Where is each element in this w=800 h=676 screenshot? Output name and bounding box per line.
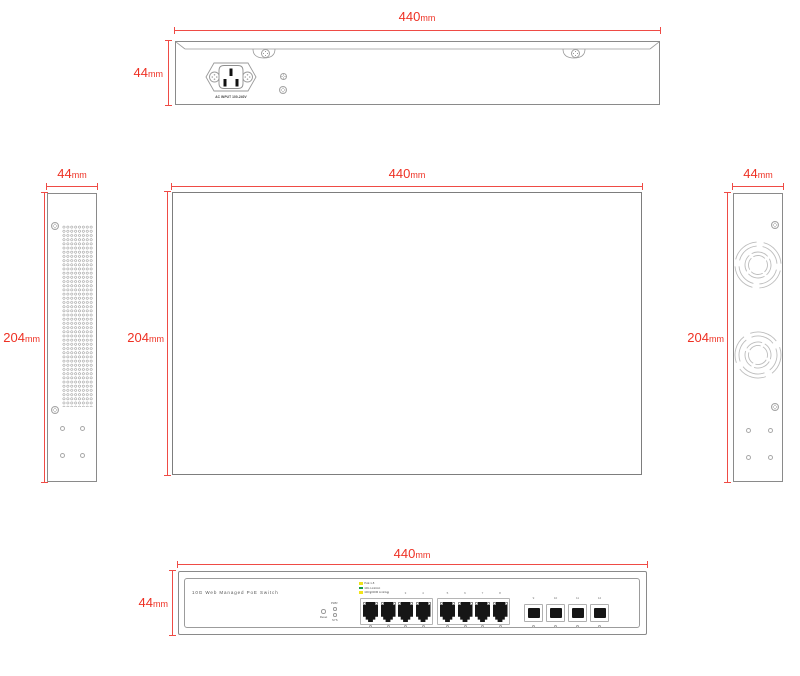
port-screw-hole bbox=[532, 625, 535, 628]
port-led-icon bbox=[493, 602, 496, 605]
mount-hole bbox=[80, 453, 85, 458]
sfp-port bbox=[590, 604, 609, 622]
dimension-line-left-width bbox=[47, 186, 97, 187]
port-led-icon bbox=[475, 602, 478, 605]
port-number: 7 bbox=[476, 592, 490, 595]
screw-icon bbox=[280, 73, 287, 80]
front-face-panel: 10G Web Managed PoE Switch PoE 1-8 10G L… bbox=[184, 578, 640, 628]
rj45-jack-icon bbox=[381, 602, 396, 622]
legend-swatch-1000m bbox=[359, 591, 363, 594]
rj45-port-group bbox=[360, 598, 433, 625]
port-screw-hole bbox=[369, 625, 372, 628]
port-led-icon bbox=[410, 602, 413, 605]
mount-hole bbox=[60, 426, 65, 431]
sfp-cage-icon bbox=[594, 608, 606, 619]
sfp-cage-icon bbox=[550, 608, 562, 619]
front-view: 10G Web Managed PoE Switch PoE 1-8 10G L… bbox=[178, 571, 647, 635]
port-led-icon bbox=[458, 602, 461, 605]
dimension-label-top-height: 204mm bbox=[127, 330, 164, 346]
mount-hole bbox=[768, 428, 773, 433]
ac-pin-line bbox=[224, 79, 227, 87]
screw-icon bbox=[261, 49, 270, 58]
port-led-icon bbox=[398, 602, 401, 605]
rj45-port bbox=[381, 602, 396, 622]
mount-hole bbox=[746, 455, 751, 460]
port-number: 8 bbox=[493, 592, 507, 595]
ac-pin-neutral bbox=[236, 79, 239, 87]
dimension-label-back-width: 440mm bbox=[399, 9, 436, 25]
sys-label: SYS bbox=[332, 619, 338, 622]
mount-hole bbox=[768, 455, 773, 460]
dimension-line-back-width bbox=[175, 30, 660, 31]
port-screw-hole bbox=[554, 625, 557, 628]
dimension-line-top-height bbox=[167, 192, 168, 475]
port-number: 9 bbox=[527, 597, 541, 600]
pwr-led bbox=[333, 607, 337, 611]
sfp-port bbox=[524, 604, 543, 622]
mount-hole bbox=[60, 453, 65, 458]
port-screw-hole bbox=[598, 625, 601, 628]
legend-swatch-poe bbox=[359, 582, 363, 585]
ac-input-label: AC INPUT 100-240V bbox=[205, 95, 257, 99]
sfp-cage-icon bbox=[528, 608, 540, 619]
rj45-jack-icon bbox=[458, 602, 473, 622]
ground-screw-icon bbox=[279, 86, 287, 94]
dimensional-drawing: 440mm 44mm AC INPUT 100-240V bbox=[0, 0, 800, 676]
port-screw-hole bbox=[404, 625, 407, 628]
port-led-icon bbox=[505, 602, 508, 605]
rj45-port bbox=[458, 602, 473, 622]
port-screw-hole bbox=[481, 625, 484, 628]
port-led-icon bbox=[470, 602, 473, 605]
pwr-label: PWR bbox=[331, 602, 338, 605]
rj45-port bbox=[475, 602, 490, 622]
port-number: 5 bbox=[441, 592, 455, 595]
left-side-view bbox=[47, 193, 97, 482]
dimension-line-top-width bbox=[172, 186, 642, 187]
top-view bbox=[172, 192, 642, 475]
dimension-line-right-width bbox=[733, 186, 783, 187]
rj45-port bbox=[398, 602, 413, 622]
port-led-icon bbox=[416, 602, 419, 605]
port-led-icon bbox=[452, 602, 455, 605]
port-led-icon bbox=[440, 602, 443, 605]
port-led-icon bbox=[487, 602, 490, 605]
fan-icon bbox=[734, 331, 782, 379]
vent-grid bbox=[62, 225, 93, 407]
dimension-line-right-height bbox=[727, 193, 728, 482]
reset-label: Reset bbox=[316, 616, 331, 619]
dimension-label-left-width: 44mm bbox=[57, 166, 86, 182]
screw-icon bbox=[771, 403, 779, 411]
port-number: 3 bbox=[399, 592, 413, 595]
port-number: 4 bbox=[416, 592, 430, 595]
rj45-port bbox=[363, 602, 378, 622]
fan-icon bbox=[734, 241, 782, 289]
rj45-jack-icon bbox=[416, 602, 431, 622]
ac-pin-ground bbox=[230, 69, 233, 77]
reset-button bbox=[321, 609, 326, 614]
rj45-jack-icon bbox=[475, 602, 490, 622]
sfp-cage-icon bbox=[572, 608, 584, 619]
screw-icon bbox=[571, 49, 580, 58]
port-led-icon bbox=[428, 602, 431, 605]
port-screw-hole bbox=[464, 625, 467, 628]
legend-swatch-10g bbox=[359, 587, 363, 590]
rj45-jack-icon bbox=[398, 602, 413, 622]
ac-inlet-icon bbox=[205, 58, 257, 96]
rj45-jack-icon bbox=[363, 602, 378, 622]
mount-hole bbox=[746, 428, 751, 433]
dimension-line-front-height bbox=[172, 571, 173, 635]
rj45-port bbox=[440, 602, 455, 622]
rj45-port-group bbox=[437, 598, 510, 625]
sfp-port bbox=[568, 604, 587, 622]
port-number: 12 bbox=[593, 597, 607, 600]
screw-icon bbox=[51, 406, 59, 414]
screw-icon bbox=[51, 222, 59, 230]
right-side-view bbox=[733, 193, 783, 482]
port-screw-hole bbox=[446, 625, 449, 628]
dimension-line-back-height bbox=[168, 41, 169, 105]
screw-icon bbox=[771, 221, 779, 229]
dimension-label-top-width: 440mm bbox=[389, 166, 426, 182]
port-number: 1 bbox=[364, 592, 378, 595]
port-number: 10 bbox=[549, 597, 563, 600]
rj45-jack-icon bbox=[493, 602, 508, 622]
dimension-label-back-height: 44mm bbox=[134, 65, 163, 81]
port-number: 6 bbox=[458, 592, 472, 595]
port-number: 11 bbox=[571, 597, 585, 600]
dimension-label-front-width: 440mm bbox=[394, 546, 431, 562]
rj45-port bbox=[416, 602, 431, 622]
port-number: 2 bbox=[381, 592, 395, 595]
mount-hole bbox=[80, 426, 85, 431]
port-screw-hole bbox=[422, 625, 425, 628]
product-label: 10G Web Managed PoE Switch bbox=[192, 590, 279, 595]
port-screw-hole bbox=[499, 625, 502, 628]
dimension-label-front-height: 44mm bbox=[139, 595, 168, 611]
dimension-label-right-width: 44mm bbox=[743, 166, 772, 182]
port-led-icon bbox=[393, 602, 396, 605]
back-view: AC INPUT 100-240V bbox=[175, 41, 660, 105]
port-led-icon bbox=[363, 602, 366, 605]
port-led-icon bbox=[381, 602, 384, 605]
port-screw-hole bbox=[387, 625, 390, 628]
port-screw-hole bbox=[576, 625, 579, 628]
port-led-icon bbox=[375, 602, 378, 605]
sys-led bbox=[333, 613, 337, 617]
rj45-port bbox=[493, 602, 508, 622]
dimension-label-left-height: 204mm bbox=[3, 330, 40, 346]
dimension-line-front-width bbox=[178, 564, 647, 565]
sfp-port bbox=[546, 604, 565, 622]
dimension-line-left-height bbox=[44, 193, 45, 482]
rj45-jack-icon bbox=[440, 602, 455, 622]
dimension-label-right-height: 204mm bbox=[687, 330, 724, 346]
